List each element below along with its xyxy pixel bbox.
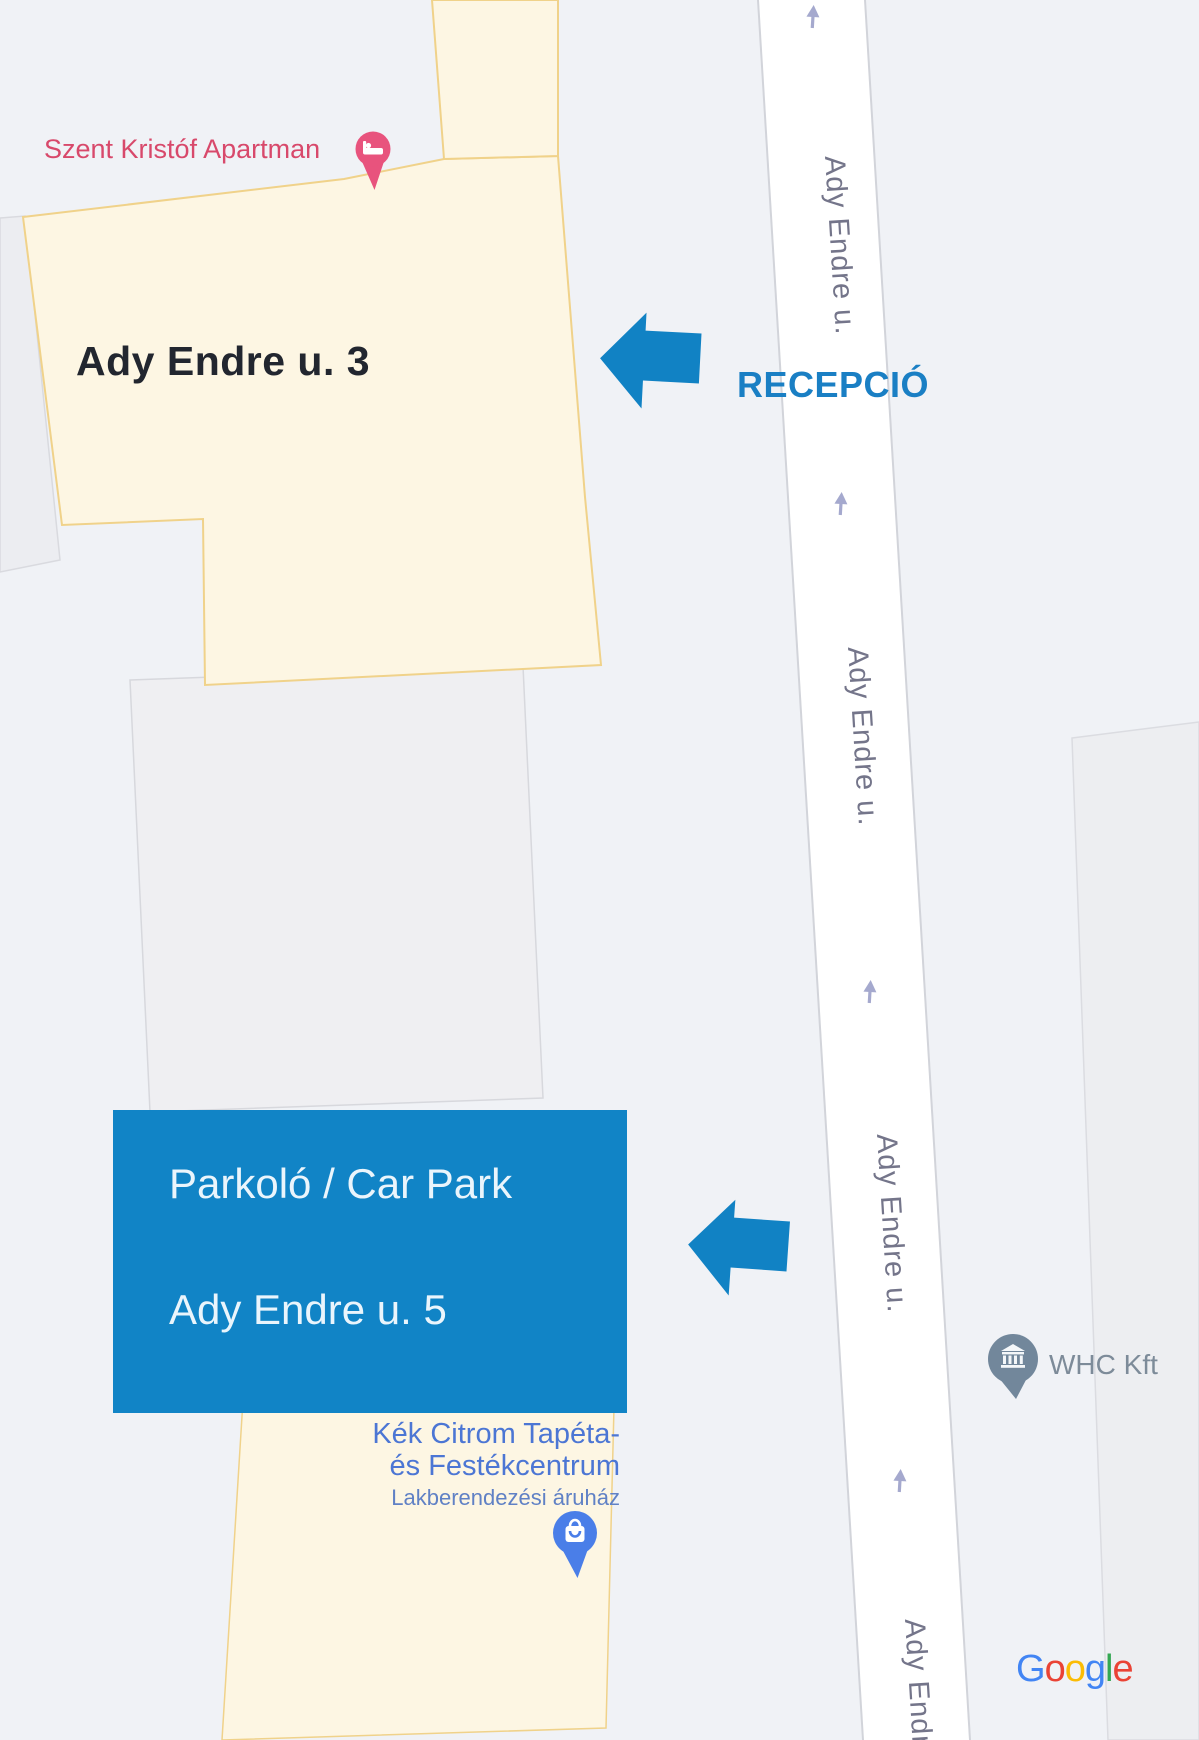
carpark-address: Ady Endre u. 5 — [169, 1286, 447, 1334]
carpark-annotation-box: Parkoló / Car Park Ady Endre u. 5 — [113, 1110, 627, 1413]
road-ady-endre — [758, 0, 970, 1740]
google-logo-letter: o — [1065, 1648, 1085, 1690]
map-canvas[interactable]: Szent Kristóf Apartman Ady Endre u. 3 RE… — [0, 0, 1199, 1740]
bank-pin-icon[interactable] — [988, 1334, 1038, 1399]
company-place-label[interactable]: WHC Kft — [1049, 1349, 1158, 1381]
apartment-place-label[interactable]: Szent Kristóf Apartman — [44, 134, 320, 165]
gray-building-middle — [130, 666, 543, 1112]
carpark-title: Parkoló / Car Park — [169, 1160, 512, 1208]
google-logo-letter: e — [1112, 1648, 1132, 1690]
building-3-address-label: Ady Endre u. 3 — [76, 338, 370, 385]
shop-name-line-1[interactable]: Kék Citrom Tapéta- — [300, 1418, 620, 1450]
carpark-left-arrow-icon — [685, 1197, 791, 1300]
reception-annotation-label: RECEPCIÓ — [737, 364, 929, 406]
google-logo-letter: o — [1045, 1648, 1065, 1690]
google-logo[interactable]: Google — [1016, 1648, 1133, 1691]
google-logo-letter: g — [1085, 1648, 1105, 1690]
recepcio-left-arrow-icon — [598, 310, 703, 411]
gray-building-right — [1072, 722, 1199, 1740]
shop-name-line-2[interactable]: és Festékcentrum — [300, 1450, 620, 1482]
google-logo-letter: G — [1016, 1648, 1045, 1690]
shop-place-label[interactable]: Kék Citrom Tapéta- és Festékcentrum Lakb… — [300, 1418, 620, 1511]
cream-building-strip-top — [432, 0, 558, 159]
cream-building-ady-endre-3 — [23, 156, 601, 685]
shop-category-label: Lakberendezési áruház — [300, 1485, 620, 1511]
